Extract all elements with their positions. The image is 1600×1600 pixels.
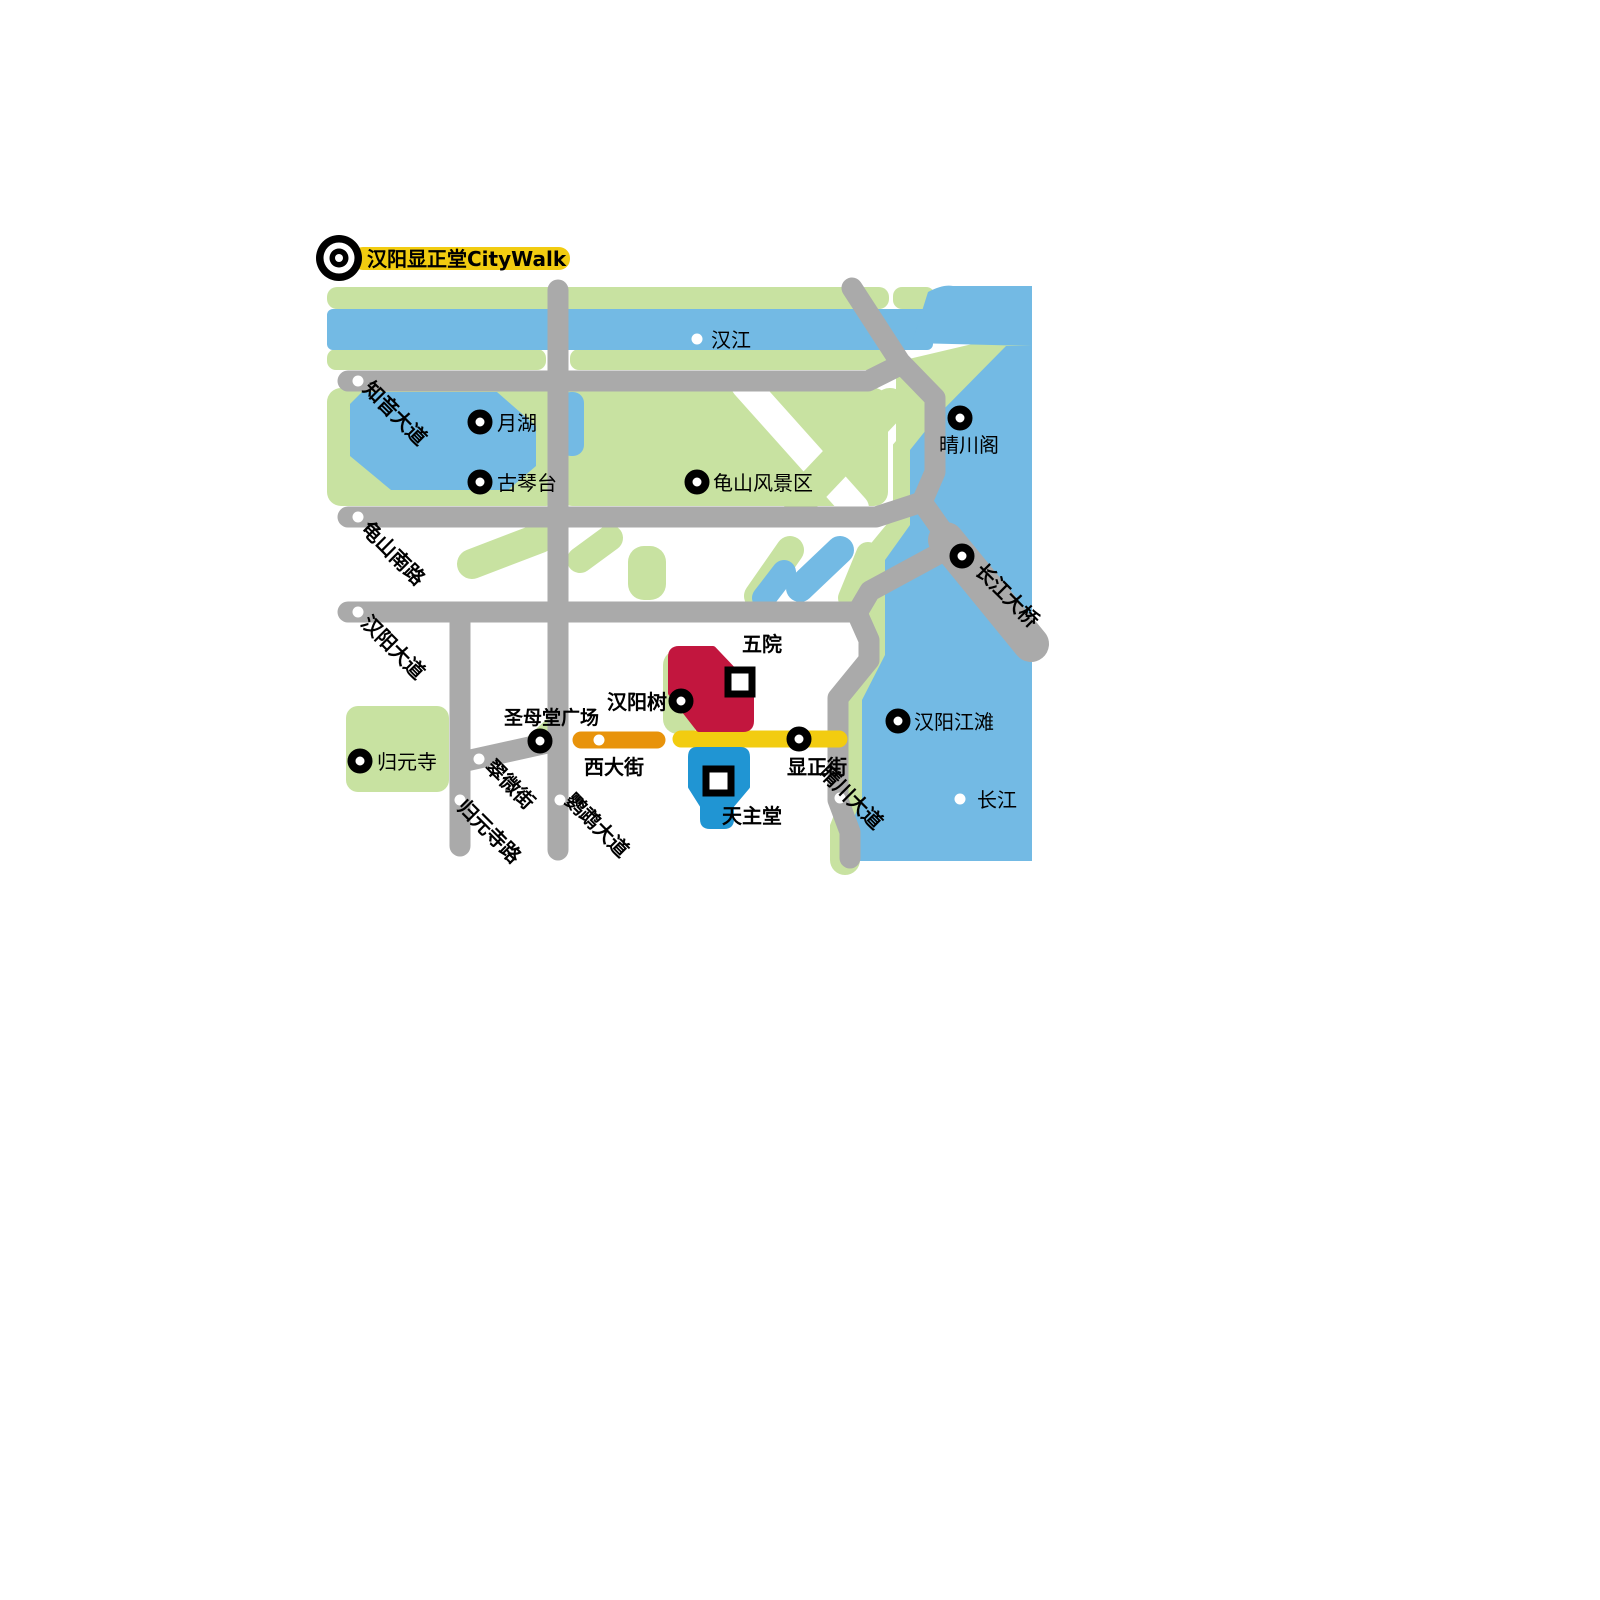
changjiang-bridge-marker bbox=[954, 548, 971, 565]
shengmutang-square-marker bbox=[532, 733, 549, 750]
hanjiang-label: 汉江 bbox=[711, 328, 751, 352]
hanyang-riverside-label: 汉阳江滩 bbox=[914, 710, 994, 734]
changjiang-dot bbox=[955, 794, 966, 805]
target-bullseye-icon bbox=[316, 235, 362, 281]
hanyang-riverside-marker bbox=[890, 713, 907, 730]
hanyang-citywalk-map: 汉阳显正堂CityWalk bbox=[0, 0, 1600, 1600]
guiyuan-temple-marker bbox=[352, 753, 369, 770]
rivers-junction-water bbox=[912, 286, 1032, 346]
yuehu-marker bbox=[472, 414, 489, 431]
wuyuan-hospital-label: 五院 bbox=[742, 632, 782, 656]
cathedral-label: 天主堂 bbox=[722, 804, 782, 828]
green-patch-1 bbox=[472, 538, 540, 564]
qingchuan-pavilion-label: 晴川阁 bbox=[939, 433, 999, 457]
green-patch-2 bbox=[580, 538, 610, 560]
guishan-scenic-marker bbox=[689, 474, 706, 491]
guqintai-label: 古琴台 bbox=[497, 471, 557, 495]
shengmutang-square-label: 圣母堂广场 bbox=[504, 706, 599, 729]
pond-patch-2 bbox=[800, 550, 840, 588]
hanyang-tree-marker bbox=[673, 693, 690, 710]
citywalk-map-page: 汉阳显正堂CityWalk bbox=[0, 0, 1600, 1600]
qingchuan-pavilion-marker bbox=[952, 410, 969, 427]
map-title: 汉阳显正堂CityWalk bbox=[316, 235, 570, 281]
hanjiang-south-bank-green-west bbox=[327, 349, 546, 370]
guiyuan-temple-label: 归元寺 bbox=[377, 750, 437, 774]
yingwu-avenue-label: 鹦鹉大道 bbox=[560, 788, 634, 862]
hanjiang-dot bbox=[692, 334, 703, 345]
hanjiang-river bbox=[327, 309, 933, 350]
changjiang-label: 长江 bbox=[977, 788, 1017, 812]
green-patch-3 bbox=[628, 546, 666, 600]
hanjiang-south-bank-green-east bbox=[570, 349, 892, 370]
guishan-south-road-label: 龟山南路 bbox=[356, 517, 430, 591]
yuehu-label: 月湖 bbox=[497, 411, 537, 435]
hanjiang-north-bank-green bbox=[327, 287, 889, 309]
cathedral-marker bbox=[706, 769, 731, 793]
xidajie-label: 西大街 bbox=[584, 755, 644, 779]
xianzhengjie-marker bbox=[791, 731, 808, 748]
cuiwei-street-label: 翠微街 bbox=[480, 755, 539, 814]
hanyang-tree-label: 汉阳树 bbox=[607, 690, 667, 714]
guishan-scenic-label: 龟山风景区 bbox=[713, 471, 813, 495]
wuyuan-hospital-marker bbox=[728, 670, 752, 694]
page-title: 汉阳显正堂CityWalk bbox=[367, 247, 567, 271]
guqintai-marker bbox=[472, 474, 489, 491]
pond-patch-1 bbox=[764, 572, 784, 598]
